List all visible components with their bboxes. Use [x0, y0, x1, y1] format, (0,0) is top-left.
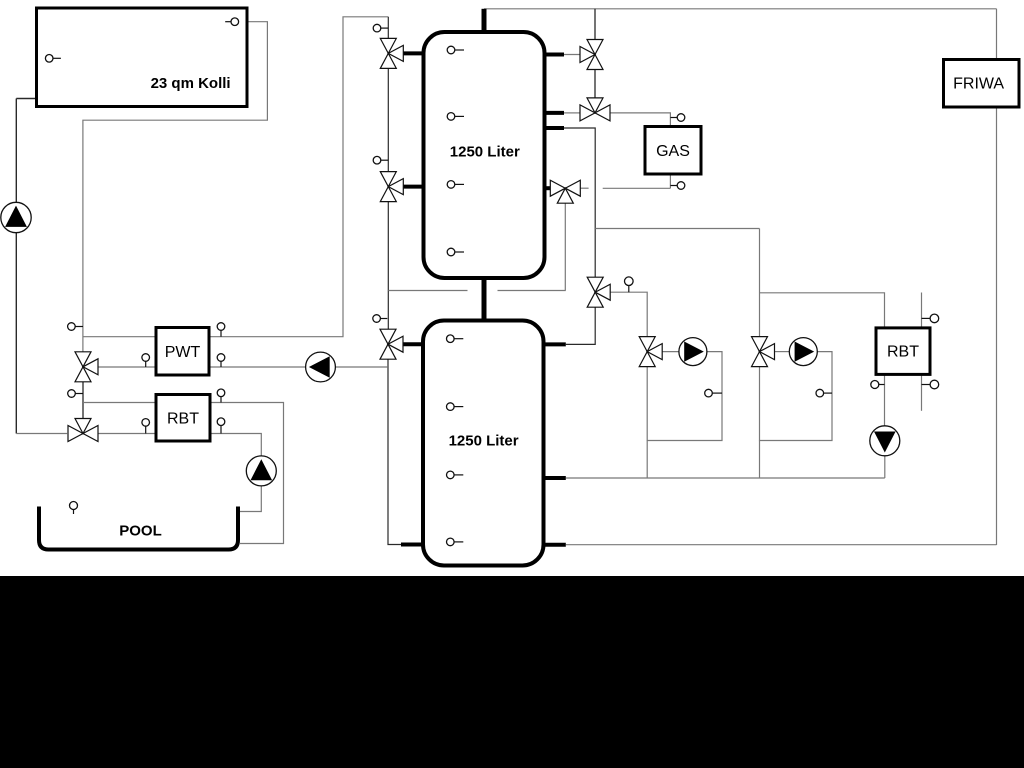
svg-text:POOL: POOL — [119, 522, 162, 539]
svg-text:23 qm Kolli: 23 qm Kolli — [151, 75, 231, 92]
svg-text:1250 Liter: 1250 Liter — [449, 433, 519, 450]
svg-text:RBT: RBT — [167, 410, 199, 427]
svg-text:FRIWA: FRIWA — [953, 76, 1004, 93]
svg-text:RBT: RBT — [887, 344, 919, 361]
svg-text:1250 Liter: 1250 Liter — [450, 144, 520, 161]
svg-text:GAS: GAS — [656, 143, 690, 160]
svg-text:PWT: PWT — [165, 344, 201, 361]
